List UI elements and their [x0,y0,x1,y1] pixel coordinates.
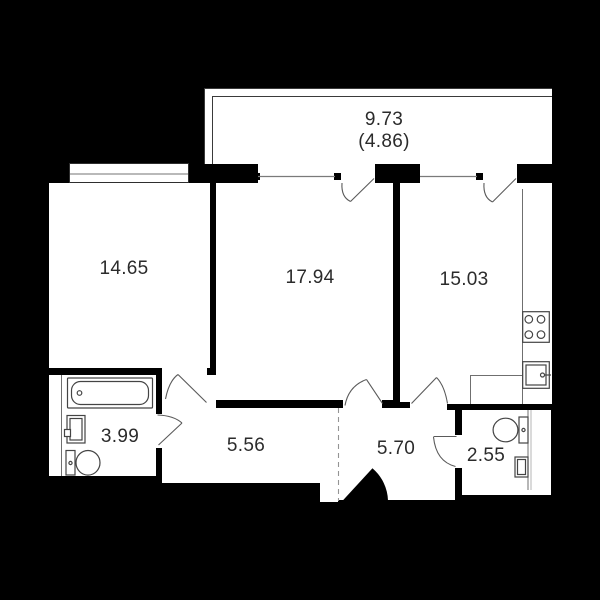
plan-linework [0,0,600,600]
kitchen-area-label: 15.03 [439,269,488,291]
bathroom-area-label: 3.99 [101,426,139,448]
wc-toilet-icon [493,417,528,443]
bathroom-door [158,415,183,445]
bedroom-door [345,380,383,406]
washbasin-icon [65,416,86,444]
balcony-area-label: 9.73 [365,109,403,131]
wc-washbasin-icon [515,457,528,477]
bedroom-area-label: 17.94 [285,267,334,289]
entry-hall-area-label: 5.70 [377,438,415,460]
living-room-area-label: 14.65 [99,258,148,280]
entrance-door-icon [344,469,388,501]
door-swings [158,179,517,467]
bathtub-icon [68,378,153,408]
floor-plan: 9.73 (4.86) 14.65 17.94 15.03 3.99 5.56 … [0,0,600,600]
kitchen-sink-icon [523,362,551,389]
kitchen-counter-line [471,189,523,404]
wc-door [434,437,457,467]
balcony-door-2 [484,179,516,203]
wc-area-label: 2.55 [467,445,505,467]
hallway-area-label: 5.56 [227,435,265,457]
toilet-icon [66,451,100,476]
living-room-door [166,375,207,403]
kitchen-door [412,378,448,404]
balcony-reduced-area-label: (4.86) [358,131,409,153]
stove-icon [523,312,550,343]
balcony-door-1 [342,179,374,202]
